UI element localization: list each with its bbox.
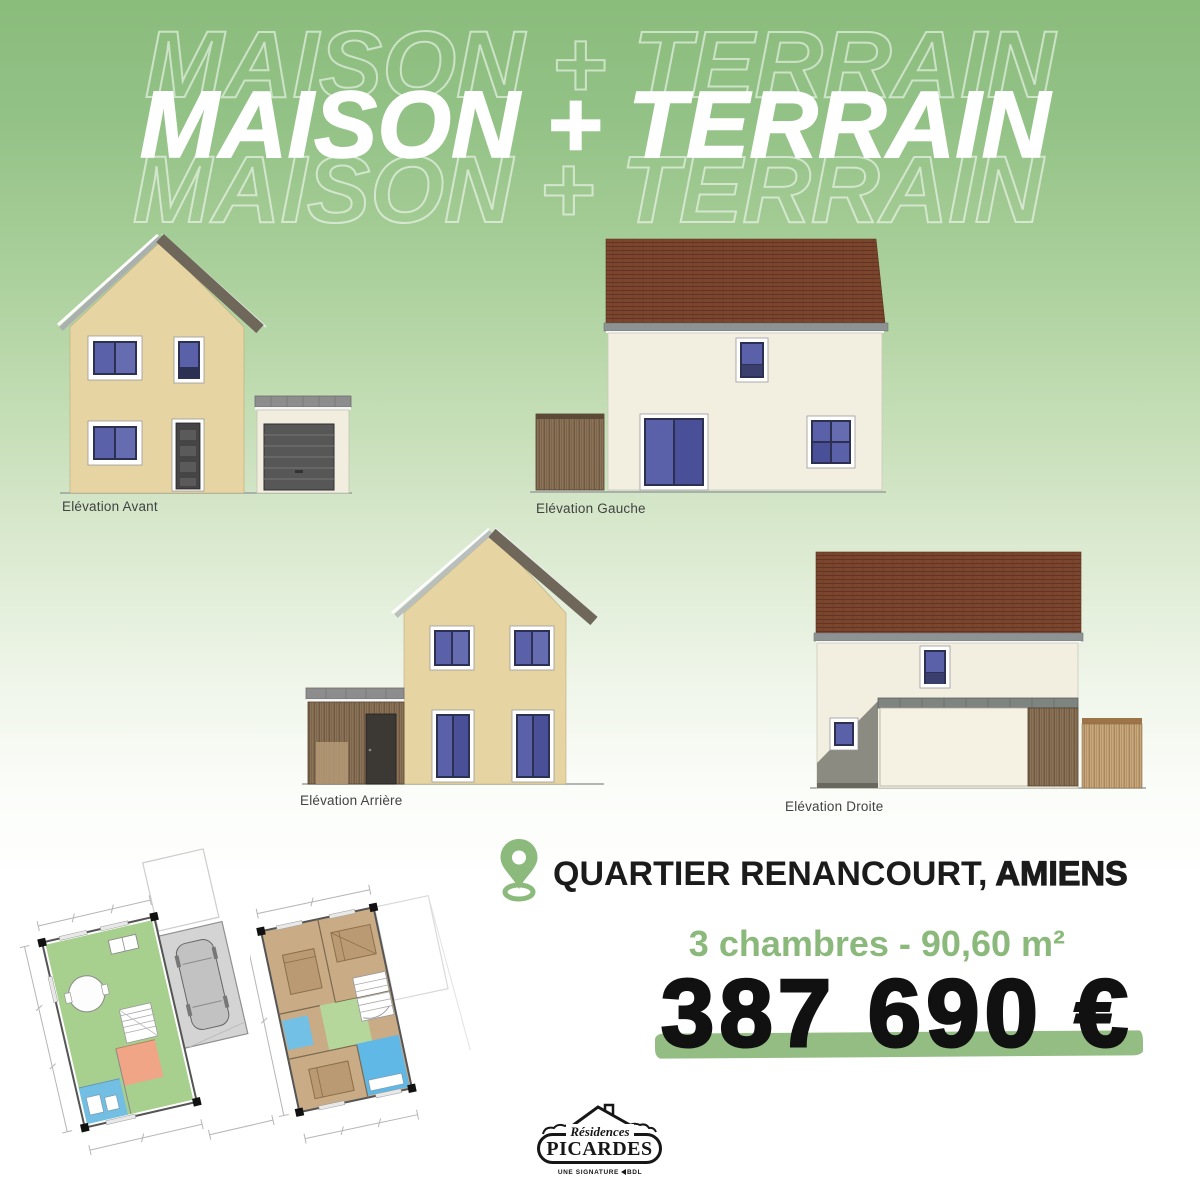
logo-tagline: UNE SIGNATUREBDL xyxy=(535,1169,665,1177)
floor-plan-ground xyxy=(20,845,280,1175)
specs-line: 3 chambres - 90,60 m² xyxy=(640,926,1065,962)
elevation-droite-drawing xyxy=(808,543,1148,813)
location-line: QUARTIER RENANCOURT,AMIENS xyxy=(553,857,1128,891)
map-pin-icon xyxy=(499,838,539,902)
price: 387 690 € xyxy=(600,966,1133,1062)
location-quartier: QUARTIER RENANCOURT, xyxy=(553,855,987,893)
bdl-mark-icon xyxy=(621,1169,626,1175)
elevation-arriere-label: Elévation Arrière xyxy=(300,793,402,808)
logo-tagline-prefix: UNE SIGNATURE xyxy=(558,1169,619,1176)
flyer-canvas: MAISON + TERRAIN MAISON + TERRAIN MAISON… xyxy=(0,0,1200,1200)
elevation-gauche-drawing xyxy=(528,234,890,510)
elevation-avant-drawing xyxy=(52,234,357,512)
elevation-avant-label: Elévation Avant xyxy=(62,499,158,514)
brand-logo: Résidences PICARDES UNE SIGNATUREBDL xyxy=(535,1103,665,1187)
elevation-droite-label: Elévation Droite xyxy=(785,799,884,814)
elevation-arriere-drawing xyxy=(298,528,610,810)
location-city: AMIENS xyxy=(995,855,1127,893)
logo-script-line: Résidences xyxy=(535,1125,665,1138)
logo-tagline-brand: BDL xyxy=(627,1169,642,1176)
page-title: MAISON + TERRAIN xyxy=(140,78,1050,173)
elevation-gauche-label: Elévation Gauche xyxy=(536,501,646,516)
floor-plan-upper xyxy=(250,852,475,1172)
